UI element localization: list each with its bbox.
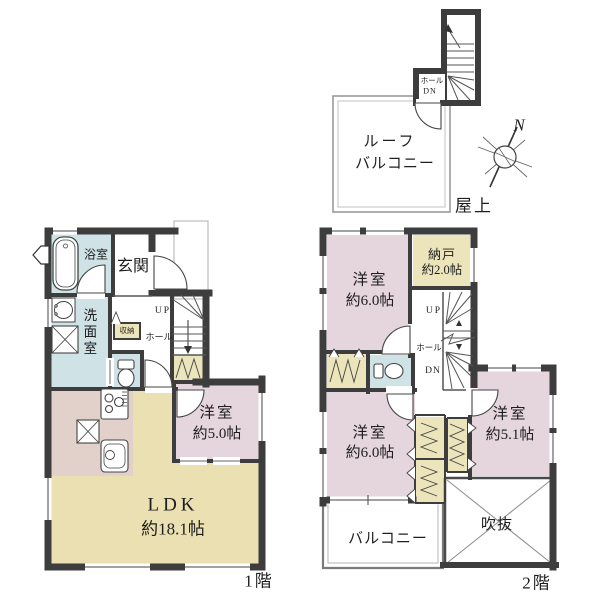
room-label-nando-name: 納戸 [428,248,456,262]
room-toilet1-area [110,352,142,389]
room-label-washroom: 洗面室 [81,308,96,358]
hall-label-roof: ホール [421,77,444,85]
room-west2-right-area [470,370,550,476]
closet-2f-left-area [327,352,368,390]
room-label-west2top-size: 約6.0帖 [346,293,395,310]
roof-area-label: 屋上 [455,198,493,217]
room-label-ldk-name: LDK [147,496,198,517]
room-label-west2right-size: 約5.1帖 [486,427,535,444]
up-label-1f: UP [155,306,171,316]
compass-rose [478,127,532,187]
room-washroom-area [48,295,110,389]
room-bath-area [48,231,113,295]
compass-north-label: N [513,117,524,136]
roof-balcony-label-line1: ルーフ [363,134,416,151]
room-label-west1-size: 約5.0帖 [193,426,242,443]
storage-label: 収納 [120,327,135,335]
dn-label-2f: DN [425,366,441,376]
floor-plan-canvas: 収納 [0,0,600,600]
dn-label-roof: DN [423,88,437,97]
room-label-nando-size: 約2.0帖 [422,264,463,278]
room-label-west2top-name: 洋室 [352,271,387,288]
balcony-label-2f: バルコニー [348,531,428,548]
closet-1f-area [172,355,206,383]
room-kitchen-area [48,387,133,476]
storage-closet-box: 収納 [113,322,141,340]
hall-label-2f: ホール [416,343,442,352]
wall-marker-arrow [33,246,49,264]
roof-stairwell [413,9,481,129]
hall-label-1f: ホール [145,333,172,343]
room-label-ldk-size: 約18.1帖 [141,521,205,540]
stairs-roof [445,24,474,100]
roof-balcony-outline [333,96,450,212]
porch-canopy-outline [174,221,208,299]
room-label-entrance: 玄関 [117,258,149,276]
closet-2f-tall-area [415,417,445,503]
closet-2f-right-area [447,418,468,472]
room-toilet2-area [370,355,413,389]
floor-label-1f: 1階 [244,573,274,592]
void-label: 吹抜 [481,517,513,534]
room-label-bath: 浴室 [84,248,108,261]
floor-label-2f: 2階 [522,575,552,594]
roof-door-arc [415,103,441,129]
roof-balcony-label-line2: バルコニー [355,156,435,173]
room-label-west2right-name: 洋室 [492,405,527,422]
up-label-2f: UP [426,306,442,316]
room-label-west1-name: 洋室 [199,404,234,421]
room-label-west2bottom-name: 洋室 [352,424,387,441]
room-west1-area [174,382,262,463]
room-label-west2bottom-size: 約6.0帖 [346,445,395,462]
stairs-1f [172,295,206,354]
